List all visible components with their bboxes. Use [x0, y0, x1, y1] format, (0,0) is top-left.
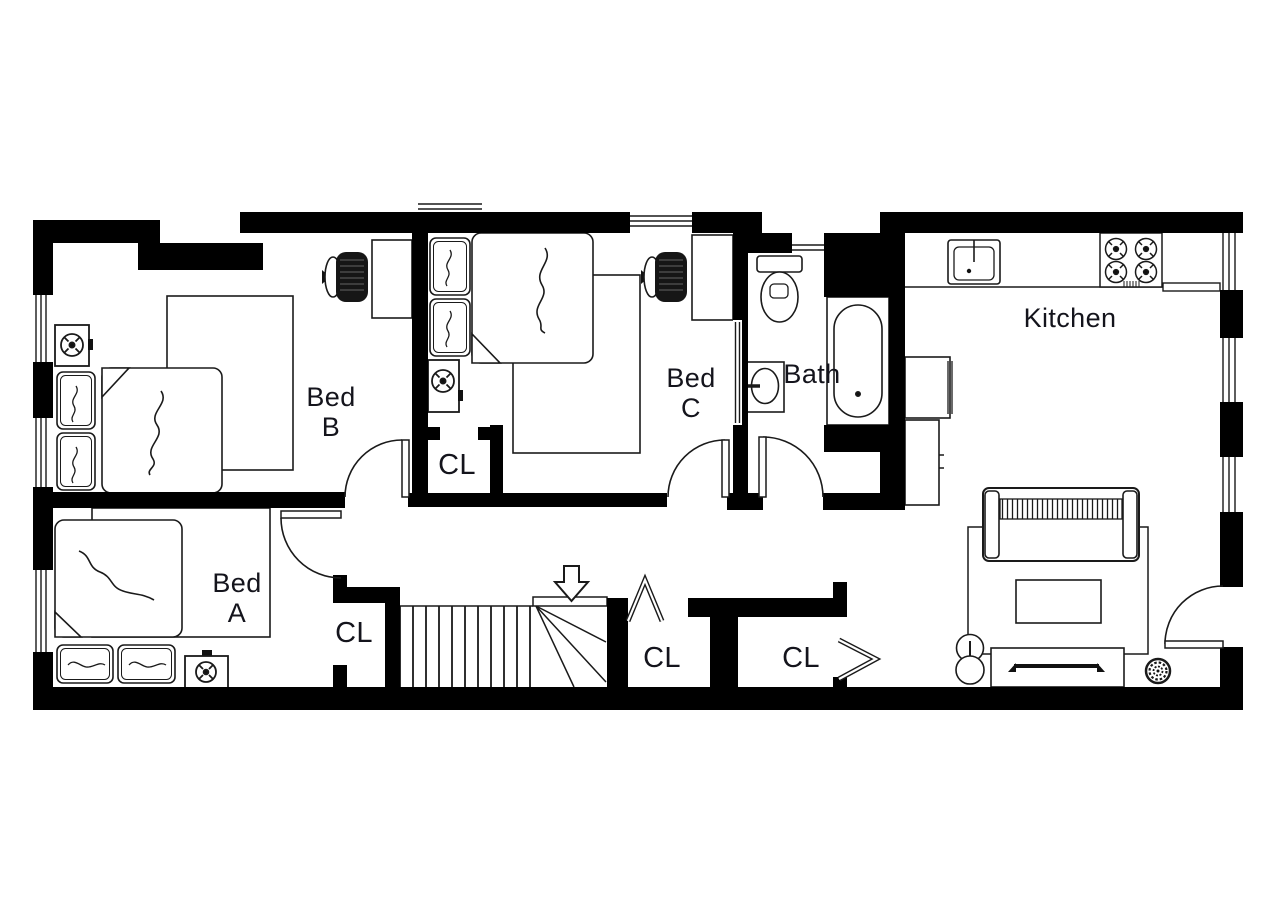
plant-icon — [1146, 659, 1170, 683]
desk — [692, 235, 733, 320]
bed-b-door — [345, 440, 409, 497]
ceiling-fan-icon — [428, 360, 463, 412]
desk-chair-icon — [641, 252, 687, 302]
closet-label-hall: CL — [771, 643, 831, 673]
bed-b-bed — [57, 296, 293, 493]
room-label-bed-c: BedC — [636, 363, 746, 423]
room-label-bed-a: BedA — [182, 568, 292, 628]
stove — [1100, 233, 1162, 287]
ceiling-fan-icon — [55, 325, 93, 366]
room-label-kitchen: Kitchen — [990, 303, 1150, 333]
entry-door — [1165, 586, 1223, 648]
kitchen-sink — [948, 240, 1000, 284]
desk — [372, 240, 412, 318]
closet-label-stairs: CL — [632, 643, 692, 673]
bifold-door-icon — [628, 580, 662, 621]
floor-plan: BedB BedA BedC Bath Kitchen CL CL CL CL — [0, 0, 1280, 909]
closet-label-bed-a: CL — [324, 618, 384, 648]
sofa — [983, 488, 1139, 561]
closet-label-upper: CL — [427, 450, 487, 480]
stairs-down-arrow-icon — [555, 566, 588, 601]
bed-c-bed — [430, 233, 640, 453]
refrigerator — [905, 357, 952, 418]
room-label-bed-b: BedB — [276, 382, 386, 442]
ceiling-fan-icon — [185, 650, 228, 688]
room-label-bath: Bath — [757, 359, 867, 389]
coffee-table — [1016, 580, 1101, 623]
tv-console — [991, 648, 1124, 687]
bifold-door-icon — [839, 640, 876, 679]
bed-c-door — [668, 440, 729, 497]
kitchen-cabinet — [905, 420, 944, 505]
desk-chair-icon — [322, 252, 368, 302]
toilet — [757, 256, 802, 322]
stairs — [400, 597, 607, 687]
bath-door — [759, 437, 823, 497]
floor-plan-drawing — [0, 0, 1280, 909]
floor-lamp-icon — [956, 635, 984, 685]
